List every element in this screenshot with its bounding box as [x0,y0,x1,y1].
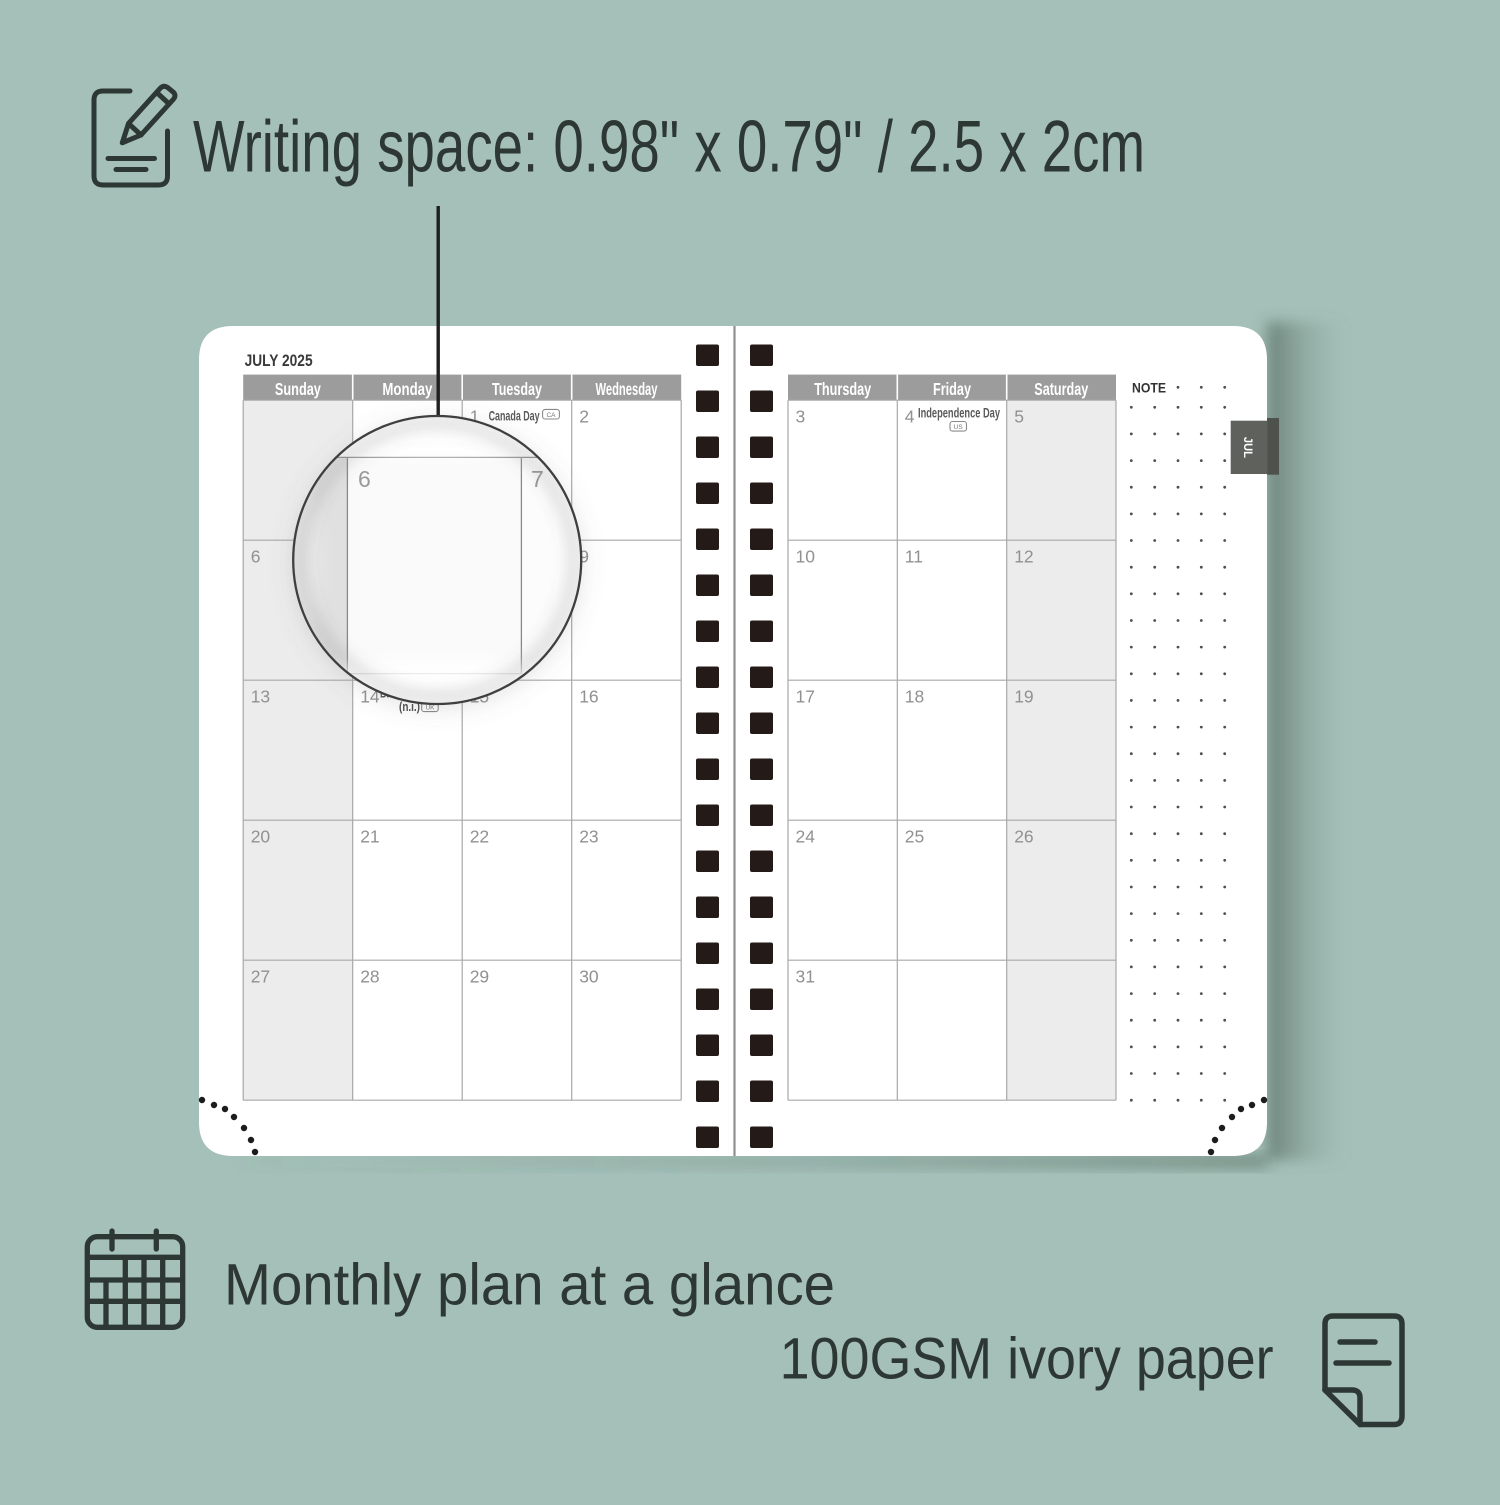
svg-text:23: 23 [579,827,598,847]
svg-text:12: 12 [1014,547,1033,567]
svg-text:19: 19 [1014,687,1033,707]
svg-text:Sunday: Sunday [275,379,321,399]
svg-text:4: 4 [905,407,915,427]
svg-text:18: 18 [905,687,924,707]
svg-text:Tuesday: Tuesday [492,379,542,399]
svg-text:NOTE: NOTE [1132,380,1166,396]
svg-text:22: 22 [470,827,489,847]
svg-text:28: 28 [360,967,379,987]
svg-text:31: 31 [796,967,815,987]
svg-text:26: 26 [1014,827,1033,847]
svg-text:21: 21 [360,827,379,847]
svg-text:100GSM ivory paper: 100GSM ivory paper [780,1326,1274,1391]
svg-text:JULY 2025: JULY 2025 [245,351,313,370]
svg-text:2: 2 [579,407,589,427]
svg-text:17: 17 [796,687,815,707]
svg-text:6: 6 [251,547,261,567]
svg-text:5: 5 [1014,407,1024,427]
svg-text:JUL: JUL [1241,437,1253,458]
svg-text:CA: CA [546,412,556,419]
svg-text:13: 13 [251,687,270,707]
svg-text:25: 25 [905,827,924,847]
svg-text:11: 11 [905,547,923,567]
svg-text:16: 16 [579,687,598,707]
svg-text:29: 29 [470,967,489,987]
svg-text:10: 10 [796,547,816,567]
svg-text:3: 3 [796,407,806,427]
svg-text:27: 27 [251,967,270,987]
svg-text:Canada Day: Canada Day [489,408,540,424]
svg-text:Monday: Monday [382,379,432,399]
svg-text:Friday: Friday [933,379,971,399]
svg-text:Monthly plan at a glance: Monthly plan at a glance [224,1253,835,1318]
svg-text:Writing space: 0.98" x 0.79" /: Writing space: 0.98" x 0.79" / 2.5 x 2cm [193,107,1145,188]
svg-text:Independence Day: Independence Day [918,405,1000,421]
svg-text:Saturday: Saturday [1034,379,1088,399]
svg-text:Wednesday: Wednesday [596,379,658,399]
svg-text:30: 30 [579,967,599,987]
svg-text:6: 6 [358,466,371,492]
svg-text:20: 20 [251,827,271,847]
svg-text:US: US [954,424,964,431]
svg-text:Thursday: Thursday [814,379,871,399]
svg-text:24: 24 [796,827,816,847]
